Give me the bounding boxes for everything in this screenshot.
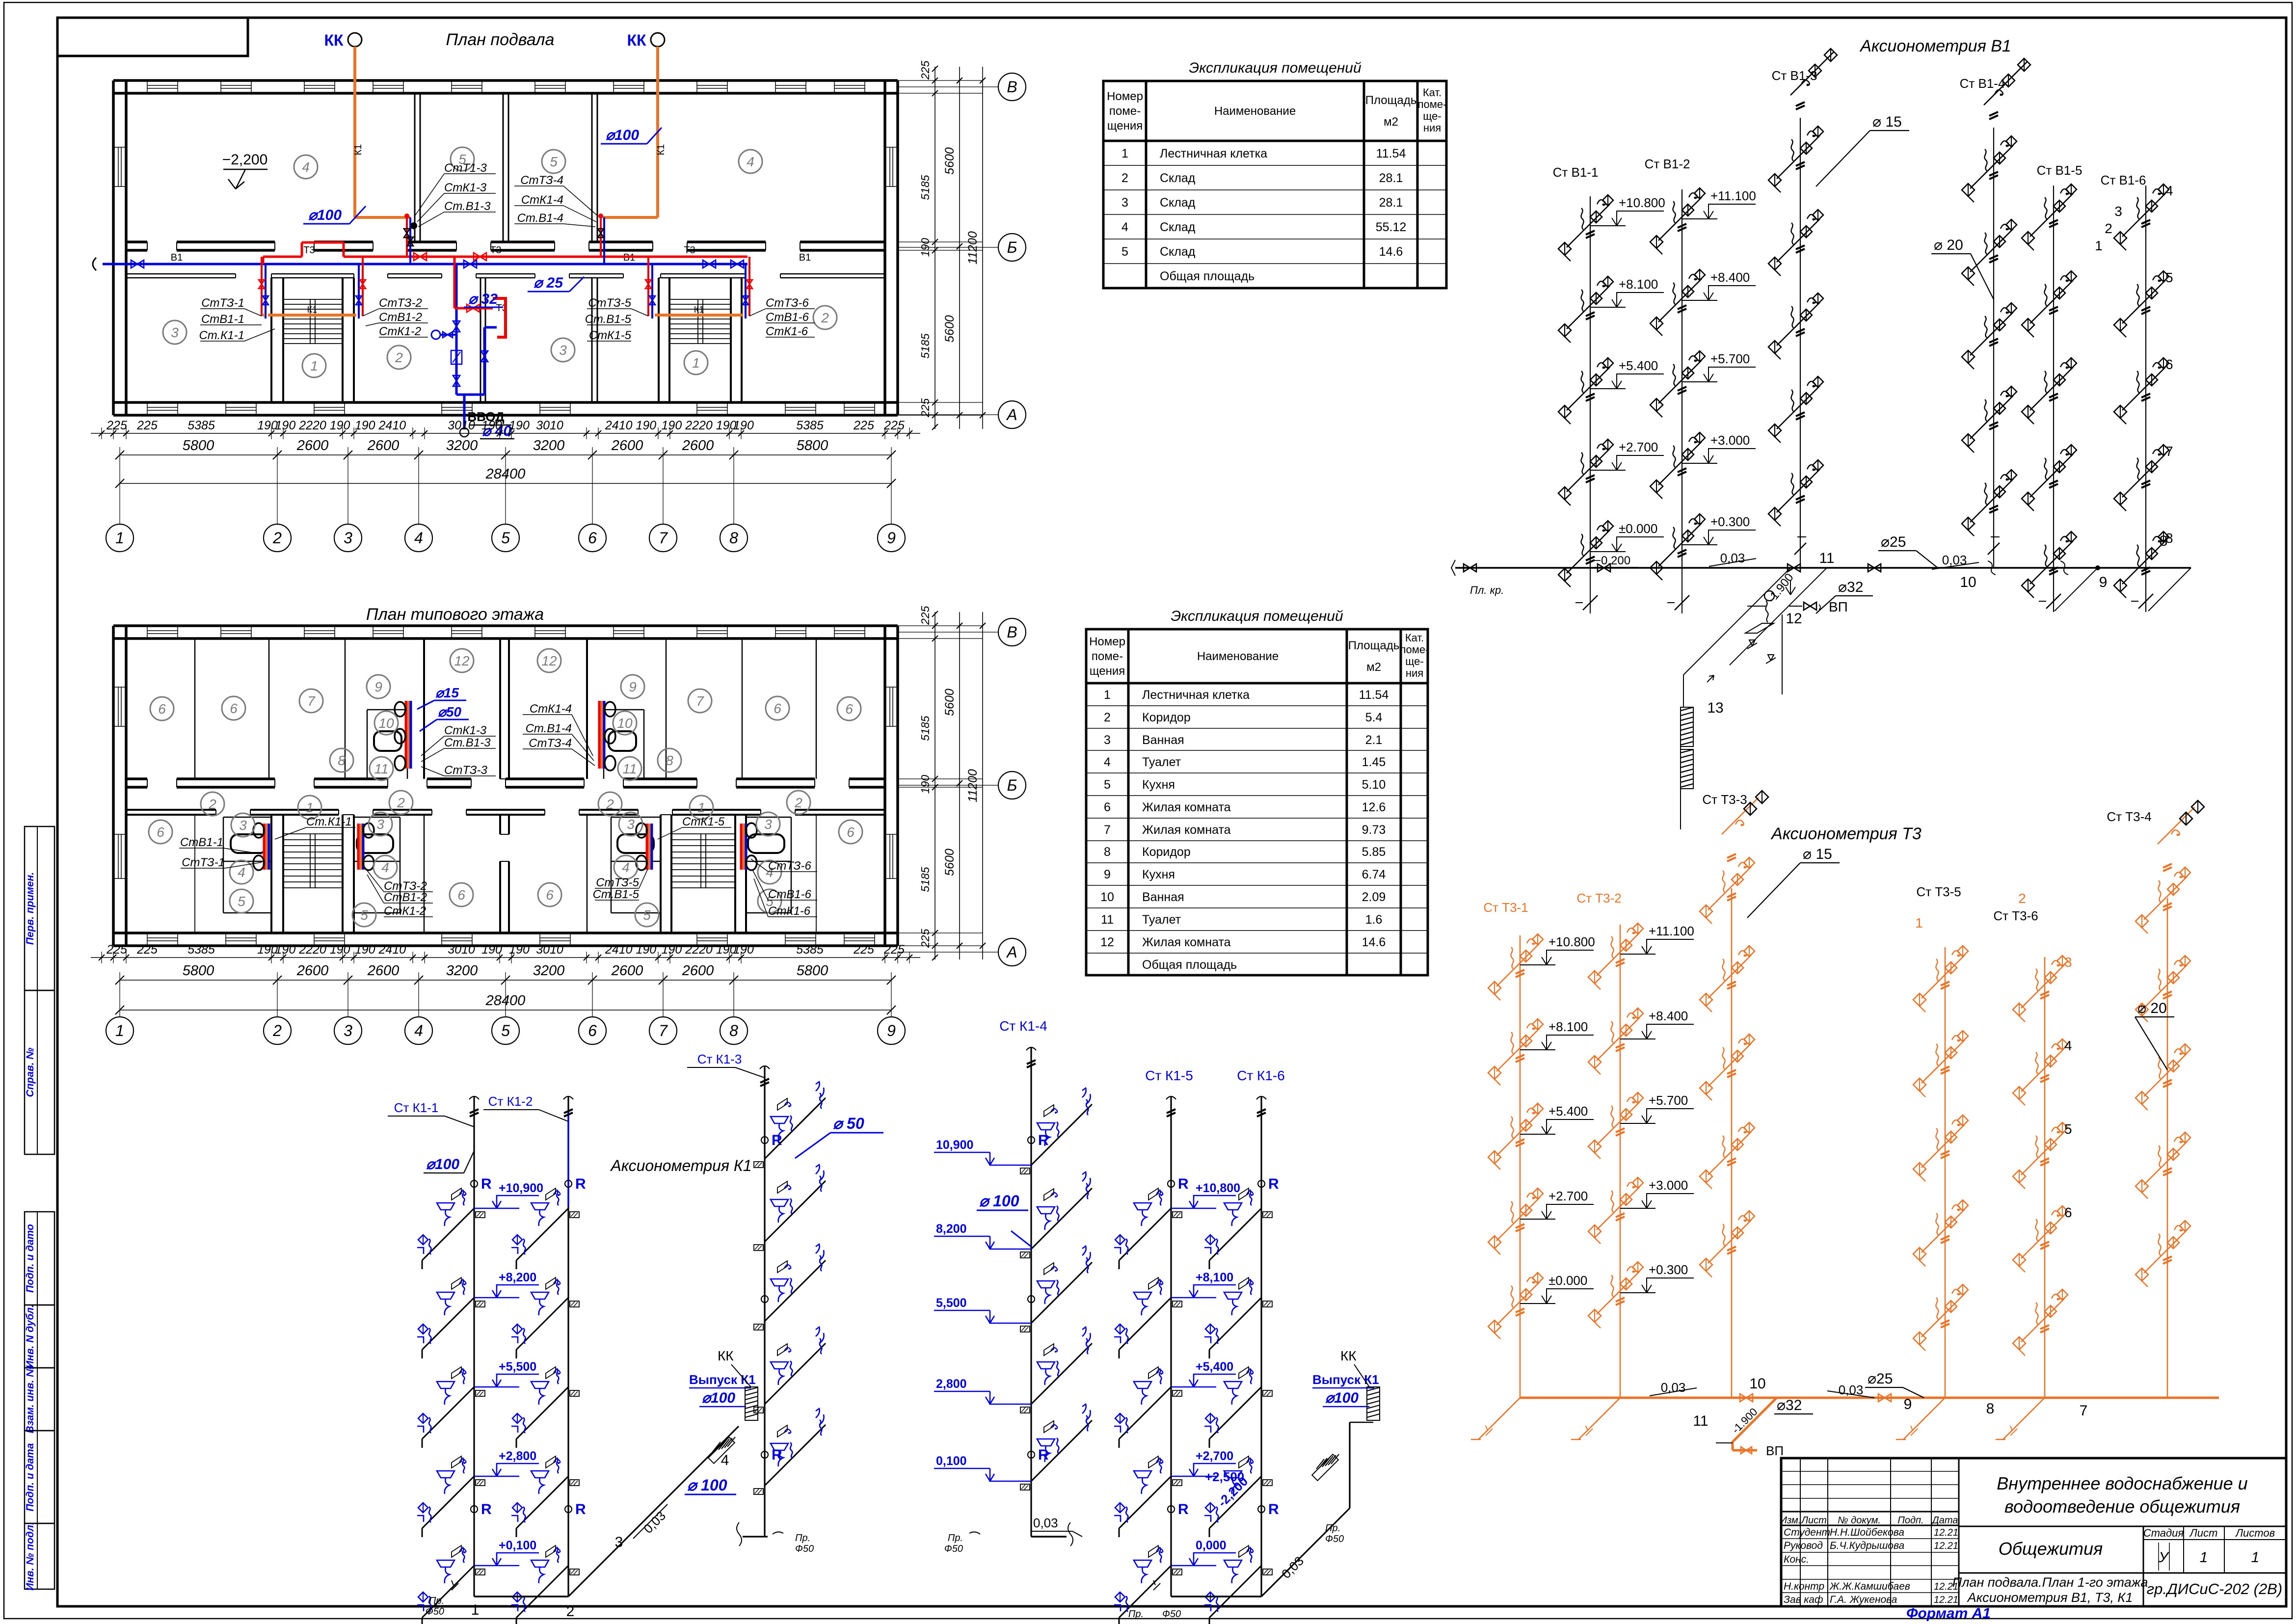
svg-text:Инв. N дубл.: Инв. N дубл. — [25, 1305, 36, 1368]
svg-text:Листов: Листов — [2235, 1527, 2275, 1539]
svg-text:190: 190 — [509, 943, 530, 957]
svg-text:+2.700: +2.700 — [1548, 1189, 1588, 1203]
svg-text:225: 225 — [919, 929, 932, 948]
svg-text:Т3: Т3 — [684, 245, 695, 256]
svg-text:Жилая комната: Жилая комната — [1142, 935, 1231, 949]
svg-text:Общежития: Общежития — [1999, 1539, 2103, 1559]
svg-text:12.6: 12.6 — [1362, 800, 1386, 814]
svg-text:Выпуск К1: Выпуск К1 — [1312, 1372, 1379, 1387]
svg-text:⌀25: ⌀25 — [1868, 1371, 1893, 1387]
svg-text:28400: 28400 — [485, 993, 526, 1009]
svg-text:Б.Ч.Кудрышова: Б.Ч.Кудрышова — [1830, 1540, 1904, 1551]
svg-text:СтТЗ-5: СтТЗ-5 — [588, 296, 631, 310]
svg-text:⌀100: ⌀100 — [1325, 1390, 1359, 1406]
svg-text:А: А — [1006, 406, 1017, 424]
svg-text:5600: 5600 — [943, 689, 957, 716]
svg-text:3010: 3010 — [448, 419, 475, 432]
svg-text:+5.400: +5.400 — [1548, 1104, 1588, 1118]
svg-text:3200: 3200 — [533, 438, 565, 453]
svg-text:+0,100: +0,100 — [499, 1539, 536, 1552]
svg-text:8: 8 — [1104, 845, 1111, 859]
svg-text:9: 9 — [887, 1022, 896, 1039]
svg-text:R: R — [1178, 1501, 1189, 1518]
svg-text:⌀ 15: ⌀ 15 — [1803, 846, 1832, 862]
svg-text:Аксионометрия К1: Аксионометрия К1 — [610, 1157, 752, 1174]
svg-text:9: 9 — [1904, 1396, 1912, 1412]
svg-text:Ст.В1-3: Ст.В1-3 — [444, 200, 491, 213]
svg-text:1: 1 — [306, 800, 314, 815]
svg-text:5: 5 — [1104, 778, 1111, 792]
svg-text:+5,400: +5,400 — [1196, 1360, 1233, 1374]
svg-text:R: R — [1178, 1176, 1189, 1192]
svg-text:Ф50: Ф50 — [1162, 1609, 1181, 1620]
svg-text:4: 4 — [1104, 755, 1111, 769]
svg-text:Ст Т3-4: Ст Т3-4 — [2107, 809, 2151, 824]
svg-text:Ф50: Ф50 — [426, 1606, 444, 1617]
svg-text:+8.400: +8.400 — [1649, 1009, 1688, 1023]
svg-text:Пр.: Пр. — [795, 1533, 810, 1544]
svg-text:+10,800: +10,800 — [1196, 1181, 1240, 1195]
svg-text:11.54: 11.54 — [1376, 147, 1406, 160]
svg-text:Жилая комната: Жилая комната — [1142, 823, 1231, 837]
svg-text:5: 5 — [501, 1022, 510, 1039]
svg-text:6: 6 — [1104, 800, 1111, 814]
svg-text:3: 3 — [1104, 733, 1111, 747]
svg-text:5: 5 — [550, 154, 558, 169]
svg-text:+11.100: +11.100 — [1710, 188, 1756, 203]
svg-text:Формат А1: Формат А1 — [1906, 1605, 1991, 1622]
svg-text:10: 10 — [1100, 890, 1114, 904]
svg-text:3: 3 — [764, 817, 772, 832]
svg-text:⌀15: ⌀15 — [435, 685, 459, 700]
svg-text:R: R — [1038, 1132, 1049, 1148]
svg-text:⌀32: ⌀32 — [1838, 579, 1863, 595]
svg-text:Лист: Лист — [1800, 1515, 1827, 1526]
svg-text:1: 1 — [2095, 238, 2103, 253]
svg-text:⌀ 15: ⌀ 15 — [1872, 114, 1902, 130]
svg-text:Ст Т3-6: Ст Т3-6 — [1993, 908, 2038, 923]
svg-text:3: 3 — [344, 529, 352, 547]
svg-text:План подвала: План подвала — [446, 30, 555, 49]
svg-text:Ст.В1-5: Ст.В1-5 — [585, 313, 632, 326]
svg-text:11: 11 — [374, 761, 388, 776]
svg-text:+2.700: +2.700 — [1619, 440, 1658, 454]
svg-text:3: 3 — [627, 817, 635, 832]
svg-text:1: 1 — [115, 1022, 124, 1039]
svg-text:2600: 2600 — [367, 438, 400, 453]
svg-text:1: 1 — [471, 1602, 480, 1618]
svg-text:щения: щения — [1090, 665, 1125, 678]
svg-text:11: 11 — [1101, 913, 1114, 927]
svg-text:⌀100: ⌀100 — [702, 1390, 735, 1406]
svg-text:Ст.В1-3: Ст.В1-3 — [444, 736, 491, 749]
svg-text:Конс.: Конс. — [1784, 1554, 1809, 1565]
svg-text:10: 10 — [378, 716, 394, 731]
svg-text:Ванная: Ванная — [1142, 890, 1184, 904]
svg-text:Лестничная клетка: Лестничная клетка — [1142, 688, 1250, 702]
svg-text:2600: 2600 — [682, 963, 714, 979]
svg-text:2600: 2600 — [296, 963, 329, 979]
svg-text:К1: К1 — [353, 144, 364, 156]
svg-text:3: 3 — [559, 343, 567, 358]
svg-text:8,200: 8,200 — [936, 1222, 967, 1236]
svg-text:⌀ 100: ⌀ 100 — [687, 1476, 727, 1494]
svg-text:225: 225 — [136, 943, 158, 957]
svg-text:2600: 2600 — [611, 963, 643, 979]
svg-text:5: 5 — [501, 529, 510, 547]
svg-text:Ст В1-4: Ст В1-4 — [1960, 76, 2005, 91]
svg-text:5385: 5385 — [187, 943, 215, 957]
svg-text:6: 6 — [157, 825, 164, 840]
svg-text:Аксионометрия Т3: Аксионометрия Т3 — [1770, 825, 1922, 843]
svg-text:3010: 3010 — [536, 419, 563, 432]
svg-text:2.1: 2.1 — [1365, 733, 1383, 747]
svg-text:СтТЗ-1: СтТЗ-1 — [201, 296, 244, 310]
svg-text:5: 5 — [2064, 1121, 2072, 1137]
svg-text:КК: КК — [718, 1348, 734, 1363]
svg-text:СтТЗ-4: СтТЗ-4 — [520, 174, 563, 187]
svg-text:2: 2 — [2105, 221, 2112, 236]
svg-text:1.45: 1.45 — [1362, 755, 1386, 769]
svg-text:5,500: 5,500 — [936, 1296, 967, 1310]
svg-text:5800: 5800 — [797, 963, 828, 979]
svg-text:Лестничная клетка: Лестничная клетка — [1160, 147, 1267, 160]
svg-text:гр.ДИСиС-202 (2В): гр.ДИСиС-202 (2В) — [2147, 1580, 2282, 1597]
svg-text:СтК1-4: СтК1-4 — [521, 193, 563, 207]
svg-text:Ст.В1-4: Ст.В1-4 — [517, 212, 563, 225]
svg-text:R: R — [1268, 1501, 1279, 1518]
svg-text:А: А — [1006, 943, 1017, 961]
svg-text:Ст.К1-1: Ст.К1-1 — [199, 329, 244, 342]
svg-text:14.6: 14.6 — [1379, 245, 1403, 259]
svg-text:2410 190: 2410 190 — [605, 943, 656, 957]
svg-text:2: 2 — [272, 529, 282, 547]
svg-text:5: 5 — [643, 907, 651, 923]
svg-text:2: 2 — [1121, 171, 1128, 185]
svg-text:К1: К1 — [656, 144, 667, 156]
svg-text:В1: В1 — [171, 252, 183, 263]
svg-text:190 2220 190: 190 2220 190 — [275, 419, 350, 432]
svg-text:5: 5 — [360, 907, 368, 923]
svg-text:1: 1 — [1915, 915, 1923, 931]
svg-text:3: 3 — [2064, 955, 2072, 970]
svg-text:Ст.В1-5: Ст.В1-5 — [593, 888, 640, 901]
svg-text:4: 4 — [414, 529, 423, 547]
svg-text:6: 6 — [847, 825, 854, 840]
svg-text:190: 190 — [919, 775, 932, 794]
svg-text:План подвала.План 1-го этажа: План подвала.План 1-го этажа — [1952, 1575, 2148, 1590]
svg-text:+10.800: +10.800 — [1619, 195, 1665, 210]
svg-text:+10.800: +10.800 — [1548, 934, 1595, 949]
svg-text:R: R — [575, 1501, 586, 1518]
svg-text:5600: 5600 — [943, 147, 957, 175]
svg-text:225: 225 — [106, 943, 127, 957]
svg-text:2,800: 2,800 — [936, 1377, 967, 1391]
svg-text:Лист: Лист — [2189, 1527, 2218, 1539]
svg-text:12: 12 — [1786, 611, 1802, 627]
svg-text:В: В — [1007, 623, 1017, 641]
svg-text:Ст Т3-3: Ст Т3-3 — [1702, 792, 1747, 807]
svg-text:Коридор: Коридор — [1142, 711, 1191, 724]
svg-text:Аксионометрия В1: Аксионометрия В1 — [1859, 37, 2011, 55]
svg-text:R: R — [481, 1176, 492, 1192]
svg-text:Изм.: Изм. — [1780, 1515, 1801, 1526]
svg-text:2410 190: 2410 190 — [605, 419, 656, 432]
svg-text:СтК1-6: СтК1-6 — [766, 325, 808, 338]
svg-text:8: 8 — [666, 753, 673, 768]
svg-text:3010: 3010 — [536, 943, 563, 957]
svg-text:⌀ 20: ⌀ 20 — [1934, 237, 1963, 253]
svg-text:поме-: поме- — [1092, 650, 1123, 663]
svg-text:1: 1 — [1104, 688, 1111, 702]
svg-text:5185: 5185 — [919, 867, 932, 892]
svg-text:Кухня: Кухня — [1142, 868, 1175, 881]
svg-text:Номер: Номер — [1107, 90, 1143, 103]
svg-text:225: 225 — [853, 943, 874, 957]
svg-text:ния: ния — [1406, 667, 1423, 679]
svg-text:10: 10 — [617, 716, 633, 731]
svg-text:R: R — [575, 1176, 586, 1192]
svg-text:2: 2 — [821, 310, 829, 325]
svg-text:Ст Т3-1: Ст Т3-1 — [1483, 900, 1528, 915]
svg-text:Ст К1-4: Ст К1-4 — [999, 1018, 1047, 1034]
svg-text:3: 3 — [2114, 204, 2122, 219]
svg-text:4: 4 — [2165, 183, 2173, 198]
svg-text:4: 4 — [238, 865, 245, 880]
svg-text:28.1: 28.1 — [1379, 171, 1403, 185]
svg-text:14.6: 14.6 — [1362, 935, 1386, 949]
svg-text:⌀100: ⌀100 — [308, 207, 342, 223]
svg-text:11: 11 — [1819, 550, 1834, 566]
svg-text:+11.100: +11.100 — [1649, 924, 1694, 938]
svg-text:поме-: поме- — [1418, 98, 1447, 110]
svg-text:5800: 5800 — [797, 438, 828, 453]
svg-text:поме-: поме- — [1400, 643, 1429, 656]
svg-text:8: 8 — [729, 1022, 738, 1039]
svg-text:ще-: ще- — [1423, 110, 1441, 122]
svg-text:6: 6 — [158, 701, 166, 717]
svg-text:Дата: Дата — [1931, 1515, 1958, 1526]
svg-text:Ст.В1-4: Ст.В1-4 — [526, 722, 572, 735]
svg-text:8: 8 — [1986, 1401, 1995, 1417]
svg-text:5800: 5800 — [183, 438, 214, 453]
svg-text:План типового этажа: План типового этажа — [366, 605, 544, 624]
svg-text:2: 2 — [2018, 891, 2026, 906]
svg-text:225: 225 — [106, 419, 127, 432]
svg-text:Руковод: Руковод — [1784, 1540, 1823, 1551]
svg-text:225: 225 — [919, 60, 932, 80]
svg-text:225: 225 — [853, 419, 874, 432]
svg-text:R: R — [1268, 1176, 1279, 1192]
svg-text:Б: Б — [1007, 776, 1017, 794]
svg-text:СтТЗ-6: СтТЗ-6 — [768, 859, 811, 873]
svg-text:м2: м2 — [1384, 115, 1398, 129]
svg-text:5: 5 — [1121, 245, 1128, 259]
svg-text:28.1: 28.1 — [1379, 196, 1403, 210]
svg-text:СтК1-5: СтК1-5 — [589, 329, 632, 342]
svg-text:Стадия: Стадия — [2143, 1527, 2184, 1539]
svg-text:⌀ 25: ⌀ 25 — [534, 275, 563, 291]
svg-text:+3.000: +3.000 — [1649, 1178, 1688, 1193]
svg-text:СтТЗ-2: СтТЗ-2 — [379, 296, 422, 310]
svg-text:+8.100: +8.100 — [1619, 277, 1658, 292]
svg-text:Склад: Склад — [1160, 196, 1196, 210]
svg-text:Пр.: Пр. — [1128, 1609, 1144, 1620]
svg-text:1: 1 — [692, 355, 700, 371]
svg-text:4: 4 — [1121, 220, 1128, 234]
svg-text:Туалет: Туалет — [1142, 755, 1181, 769]
svg-text:11: 11 — [622, 761, 637, 776]
svg-text:6: 6 — [588, 529, 597, 547]
svg-text:190 2220 190: 190 2220 190 — [275, 943, 350, 957]
svg-text:2: 2 — [606, 797, 614, 812]
svg-text:Ф50: Ф50 — [944, 1544, 963, 1554]
svg-text:поме-: поме- — [1109, 105, 1141, 118]
svg-text:Подп.: Подп. — [1897, 1515, 1923, 1526]
svg-text:2: 2 — [566, 1603, 575, 1620]
svg-text:2: 2 — [794, 795, 802, 810]
svg-text:Ст К1-5: Ст К1-5 — [1145, 1068, 1193, 1083]
svg-text:0,000: 0,000 — [1196, 1539, 1227, 1552]
svg-text:7: 7 — [696, 693, 704, 709]
svg-text:±0.000: ±0.000 — [1548, 1273, 1587, 1288]
svg-text:12: 12 — [541, 653, 557, 668]
svg-text:9: 9 — [374, 679, 382, 694]
svg-text:СтК1-2: СтК1-2 — [379, 325, 421, 338]
svg-text:СтВ1-2: СтВ1-2 — [379, 311, 422, 324]
svg-text:190: 190 — [509, 419, 530, 432]
svg-text:6: 6 — [774, 701, 781, 716]
svg-text:Ст Т3-5: Ст Т3-5 — [1916, 884, 1961, 899]
svg-text:+8.100: +8.100 — [1548, 1019, 1588, 1034]
svg-text:9: 9 — [629, 679, 637, 694]
svg-text:3200: 3200 — [446, 438, 478, 453]
svg-text:4: 4 — [2064, 1038, 2072, 1053]
svg-text:⌀ 50: ⌀ 50 — [833, 1115, 864, 1132]
svg-text:1.6: 1.6 — [1365, 913, 1383, 927]
svg-text:8: 8 — [729, 529, 738, 547]
svg-text:⌀25: ⌀25 — [1881, 534, 1906, 550]
svg-text:Б: Б — [1007, 239, 1017, 256]
svg-text:У: У — [2158, 1549, 2169, 1566]
svg-text:0,100: 0,100 — [936, 1454, 967, 1468]
svg-text:СтТЗ-5: СтТЗ-5 — [596, 876, 639, 889]
svg-text:9.73: 9.73 — [1362, 823, 1386, 837]
svg-text:−2,200: −2,200 — [222, 152, 268, 168]
svg-text:10: 10 — [1960, 574, 1976, 590]
svg-text:⌀ 20: ⌀ 20 — [2137, 1000, 2167, 1016]
svg-text:1: 1 — [115, 529, 124, 547]
svg-text:6: 6 — [2165, 357, 2173, 372]
svg-text:2: 2 — [395, 350, 403, 365]
svg-text:5185: 5185 — [919, 716, 932, 741]
svg-text:7: 7 — [2165, 444, 2173, 459]
svg-text:5.10: 5.10 — [1362, 778, 1386, 792]
svg-text:СтК1-3: СтК1-3 — [444, 724, 487, 737]
svg-text:6: 6 — [230, 701, 238, 716]
svg-text:2: 2 — [397, 795, 405, 810]
svg-text:5600: 5600 — [943, 315, 957, 343]
svg-text:5800: 5800 — [183, 963, 214, 979]
svg-text:R: R — [772, 1447, 782, 1463]
svg-text:12.21: 12.21 — [1934, 1595, 1958, 1605]
svg-text:1: 1 — [1121, 147, 1128, 160]
svg-text:⌀100: ⌀100 — [426, 1156, 459, 1172]
svg-text:7: 7 — [307, 693, 316, 709]
svg-text:Выпуск К1: Выпуск К1 — [689, 1372, 756, 1387]
svg-text:СтВ1-2: СтВ1-2 — [384, 891, 427, 904]
svg-text:3: 3 — [615, 1534, 623, 1550]
svg-text:2: 2 — [208, 797, 216, 812]
svg-text:4: 4 — [414, 1022, 423, 1039]
svg-text:190: 190 — [481, 419, 502, 432]
svg-text:Наименование: Наименование — [1214, 105, 1296, 118]
svg-text:Ст К1-1: Ст К1-1 — [394, 1100, 439, 1115]
svg-text:КК: КК — [324, 31, 344, 49]
svg-text:11200: 11200 — [966, 231, 980, 265]
svg-text:СтК1-3: СтК1-3 — [444, 181, 487, 194]
svg-text:0,03: 0,03 — [1720, 551, 1745, 565]
svg-text:5385: 5385 — [796, 943, 824, 957]
svg-text:Площадь: Площадь — [1348, 639, 1399, 652]
svg-text:−0.200: −0.200 — [1594, 554, 1630, 567]
svg-text:Экспликация помещений: Экспликация помещений — [1189, 60, 1362, 76]
svg-text:К1: К1 — [307, 305, 318, 315]
svg-text:водоотведение общежития: водоотведение общежития — [2004, 1496, 2240, 1517]
svg-text:Ж.Ж.Камшибаев: Ж.Ж.Камшибаев — [1829, 1581, 1910, 1592]
svg-text:ВП: ВП — [1829, 599, 1848, 614]
svg-text:Ф50: Ф50 — [795, 1544, 814, 1554]
svg-text:⌀50: ⌀50 — [438, 704, 461, 719]
svg-text:Ст К1-3: Ст К1-3 — [697, 1052, 742, 1066]
svg-text:Внутреннее водоснабжение и: Внутреннее водоснабжение и — [1997, 1473, 2247, 1493]
svg-text:Ст К1-6: Ст К1-6 — [1237, 1068, 1285, 1083]
svg-text:0,03: 0,03 — [1839, 1383, 1864, 1397]
svg-text:Кат.: Кат. — [1423, 86, 1442, 99]
svg-text:Н.Н.Шойбекова: Н.Н.Шойбекова — [1830, 1527, 1904, 1538]
svg-text:2: 2 — [272, 1022, 282, 1039]
svg-text:28400: 28400 — [485, 466, 526, 482]
svg-text:225: 225 — [919, 606, 932, 625]
svg-text:3200: 3200 — [533, 963, 565, 979]
svg-text:+5.400: +5.400 — [1619, 358, 1658, 373]
svg-text:СтК1-6: СтК1-6 — [768, 905, 811, 918]
svg-text:13: 13 — [1707, 700, 1723, 716]
svg-text:СтВ1-6: СтВ1-6 — [768, 888, 812, 901]
svg-text:7: 7 — [2080, 1403, 2088, 1419]
svg-text:9: 9 — [1104, 868, 1111, 881]
svg-text:СтК1-2: СтК1-2 — [384, 905, 426, 918]
svg-text:ния: ния — [1423, 122, 1441, 134]
svg-text:4: 4 — [381, 860, 389, 875]
svg-text:1: 1 — [2200, 1549, 2208, 1566]
svg-text:2600: 2600 — [367, 963, 400, 979]
svg-text:Г.А. Жукенова: Г.А. Жукенова — [1830, 1594, 1897, 1605]
svg-text:10: 10 — [1749, 1376, 1765, 1392]
svg-text:3: 3 — [239, 818, 247, 833]
svg-text:СтВ1-1: СтВ1-1 — [180, 836, 223, 849]
svg-text:К1: К1 — [694, 305, 704, 315]
svg-text:5: 5 — [2165, 270, 2173, 285]
svg-text:190 2410: 190 2410 — [355, 419, 406, 432]
svg-text:⌀ 100: ⌀ 100 — [979, 1192, 1019, 1210]
svg-text:3: 3 — [1121, 196, 1128, 210]
svg-text:СтТЗ-3: СтТЗ-3 — [444, 764, 487, 777]
svg-text:+2,800: +2,800 — [499, 1449, 536, 1463]
svg-text:Зав каф: Зав каф — [1784, 1594, 1823, 1605]
svg-text:СтК1-4: СтК1-4 — [530, 702, 572, 716]
svg-text:Кухня: Кухня — [1142, 778, 1175, 792]
